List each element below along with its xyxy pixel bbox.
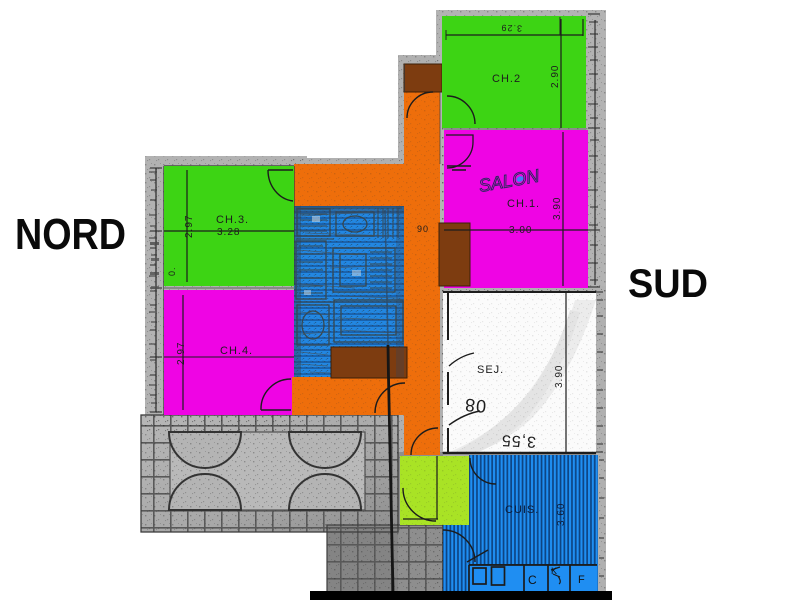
- svg-text:90: 90: [417, 224, 429, 234]
- svg-text:3.60: 3.60: [556, 503, 567, 526]
- svg-text:0.: 0.: [167, 266, 177, 276]
- svg-text:3.90: 3.90: [554, 365, 565, 388]
- svg-text:08: 08: [463, 395, 487, 417]
- svg-text:NORD: NORD: [15, 210, 126, 259]
- svg-text:CH.4.: CH.4.: [220, 345, 253, 357]
- svg-text:SEJ.: SEJ.: [477, 364, 504, 376]
- svg-text:3.28: 3.28: [217, 227, 240, 238]
- svg-text:3.00: 3.00: [509, 225, 532, 236]
- svg-text:3.29: 3.29: [500, 23, 522, 34]
- svg-text:2.97: 2.97: [184, 215, 195, 238]
- svg-text:2.90: 2.90: [550, 65, 561, 88]
- svg-text:C: C: [528, 573, 538, 587]
- svg-text:3,55: 3,55: [501, 431, 537, 450]
- svg-text:2.97: 2.97: [176, 342, 187, 365]
- svg-text:SUD: SUD: [628, 262, 708, 306]
- svg-text:F: F: [578, 574, 586, 586]
- svg-text:CH.2: CH.2: [492, 73, 521, 85]
- svg-text:K: K: [551, 566, 558, 576]
- svg-text:CUIS.: CUIS.: [505, 504, 539, 516]
- svg-text:3.90: 3.90: [552, 197, 563, 220]
- svg-text:CH.1.: CH.1.: [507, 198, 540, 210]
- svg-text:CH.3.: CH.3.: [216, 214, 249, 226]
